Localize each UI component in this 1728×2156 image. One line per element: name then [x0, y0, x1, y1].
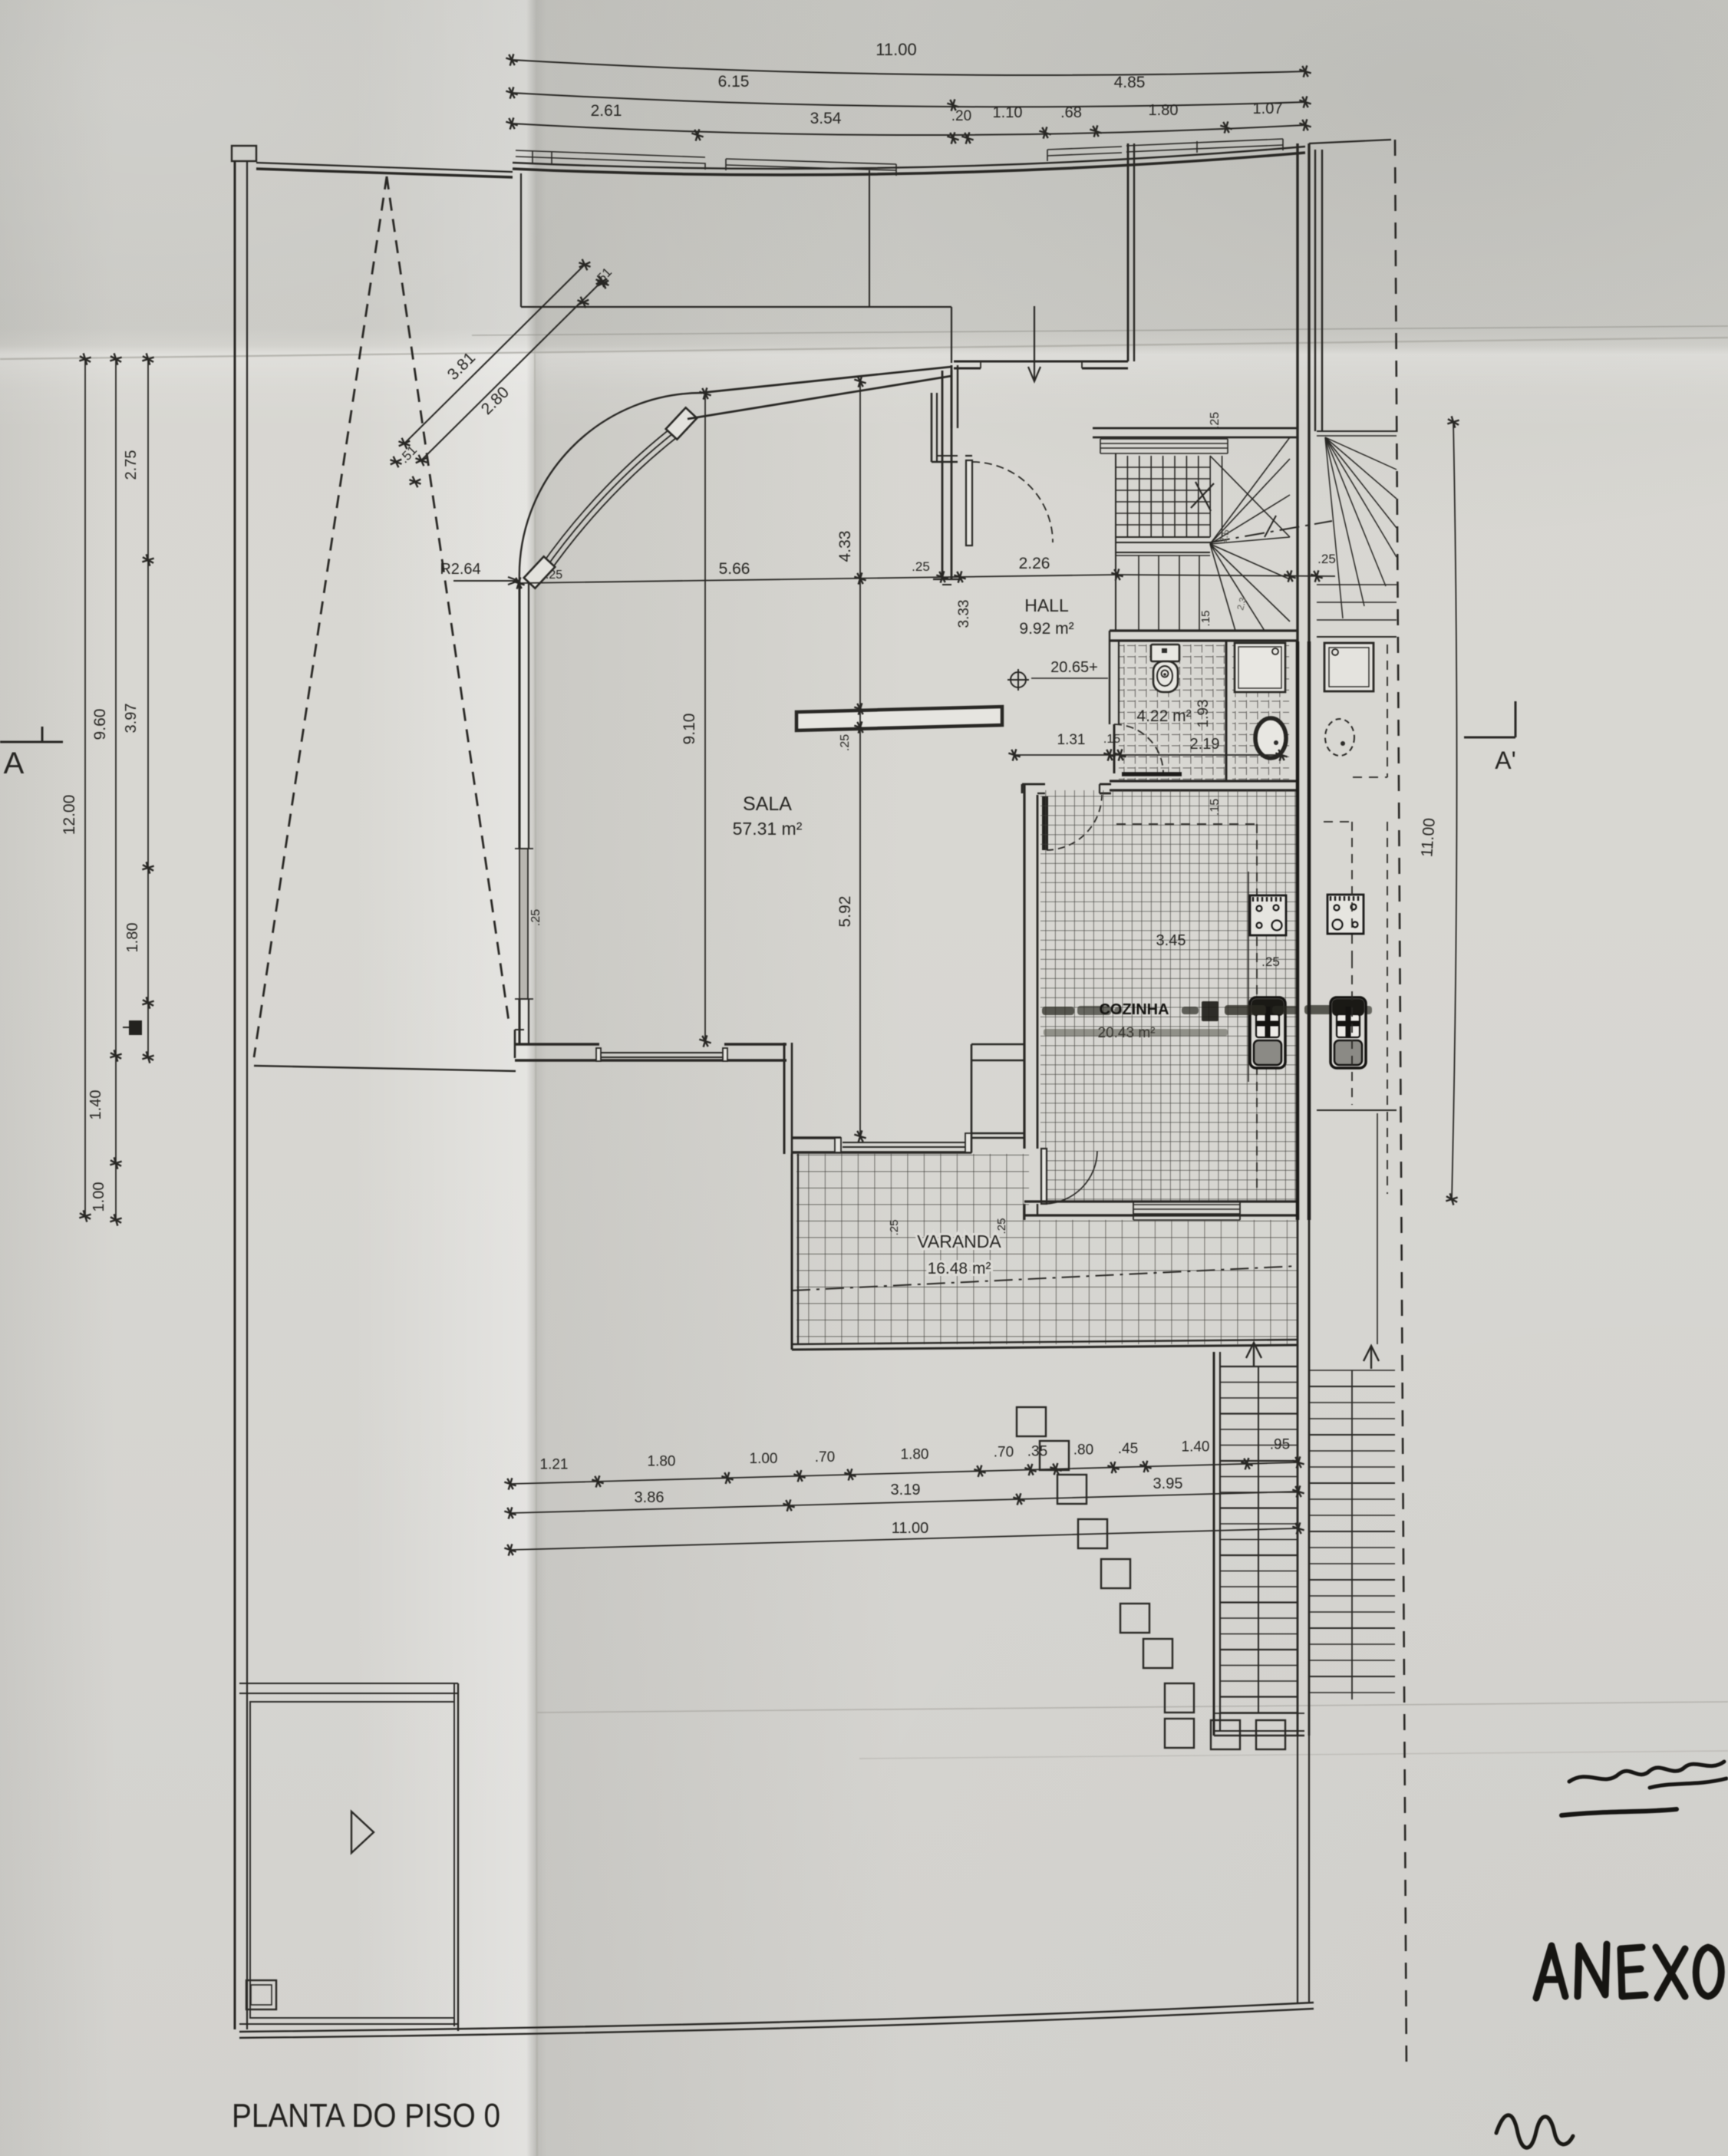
svg-text:.25: .25: [1209, 412, 1222, 429]
svg-text:1.31: 1.31: [1057, 732, 1086, 748]
svg-text:2.75: 2.75: [123, 450, 140, 480]
svg-text:11.00: 11.00: [1418, 817, 1439, 857]
svg-text:3.19: 3.19: [891, 1482, 921, 1498]
svg-text:3.33: 3.33: [956, 600, 972, 628]
svg-text:.15: .15: [1209, 799, 1222, 816]
svg-text:1.80: 1.80: [901, 1447, 929, 1463]
svg-text:20.43 m²: 20.43 m²: [1098, 1025, 1156, 1041]
svg-text:20.65+: 20.65+: [1050, 659, 1098, 676]
svg-text:4.85: 4.85: [1114, 74, 1146, 91]
svg-text:.25: .25: [1261, 954, 1280, 969]
svg-text:1.93: 1.93: [1195, 700, 1212, 728]
svg-text:.20: .20: [951, 108, 971, 124]
svg-text:.80: .80: [1073, 1442, 1093, 1459]
svg-text:11.00: 11.00: [892, 1520, 929, 1537]
svg-text:.25: .25: [546, 569, 562, 582]
svg-text:.51: .51: [592, 265, 615, 288]
svg-text:1.07: 1.07: [1253, 101, 1283, 117]
svg-text:16.48 m²: 16.48 m²: [928, 1260, 991, 1277]
svg-text:.15: .15: [1103, 733, 1120, 746]
svg-text:.68: .68: [1060, 104, 1082, 121]
svg-text:2.80: 2.80: [478, 384, 513, 418]
svg-text:3.54: 3.54: [810, 110, 842, 127]
svg-text:VARANDA: VARANDA: [917, 1231, 1001, 1251]
svg-text:2.19: 2.19: [1190, 736, 1220, 753]
svg-text:1.21: 1.21: [540, 1456, 569, 1472]
svg-text:HALL: HALL: [1024, 595, 1069, 615]
svg-text:.35: .35: [1027, 1443, 1047, 1459]
svg-text:4.33: 4.33: [836, 531, 854, 562]
svg-text:9.10: 9.10: [681, 714, 698, 745]
svg-text:2.61: 2.61: [591, 102, 622, 120]
svg-text:2.26: 2.26: [1019, 555, 1050, 572]
svg-text:COZINHA: COZINHA: [1099, 1001, 1169, 1018]
svg-text:.25: .25: [839, 734, 852, 751]
svg-text:1.00: 1.00: [750, 1451, 778, 1467]
svg-text:A: A: [4, 747, 25, 780]
svg-text:6.15: 6.15: [718, 73, 750, 91]
svg-text:.25: .25: [888, 1220, 901, 1236]
svg-text:.15: .15: [1199, 611, 1212, 627]
svg-text:A': A': [1495, 747, 1515, 774]
svg-text:PLANTA DO PISO 0: PLANTA DO PISO 0: [232, 2097, 500, 2135]
svg-text:12.00: 12.00: [61, 795, 78, 836]
svg-text:1.10: 1.10: [993, 104, 1023, 121]
svg-text:3.95: 3.95: [1153, 1475, 1183, 1492]
svg-text:1.00: 1.00: [91, 1182, 107, 1212]
svg-text:5.66: 5.66: [719, 560, 750, 578]
svg-text:SALA: SALA: [743, 793, 792, 815]
svg-text:.25: .25: [995, 1218, 1008, 1235]
svg-text:1.80: 1.80: [124, 923, 141, 953]
svg-text:4.22 m²: 4.22 m²: [1136, 707, 1191, 725]
svg-text:R2.64: R2.64: [440, 561, 480, 578]
svg-text:9.60: 9.60: [91, 709, 109, 740]
svg-text:1.80: 1.80: [1149, 102, 1179, 119]
svg-text:.25: .25: [1317, 552, 1336, 566]
svg-text:3.45: 3.45: [1156, 932, 1186, 949]
svg-text:11.00: 11.00: [876, 40, 916, 59]
svg-text:5.92: 5.92: [836, 896, 854, 928]
svg-text:1.40: 1.40: [1182, 1439, 1210, 1455]
svg-text:.70: .70: [994, 1445, 1014, 1461]
svg-text:3.97: 3.97: [123, 704, 140, 734]
svg-text:.25: .25: [912, 559, 930, 574]
svg-text:2.3: 2.3: [1235, 596, 1248, 612]
svg-text:.70: .70: [815, 1449, 835, 1465]
svg-text:1.40: 1.40: [87, 1090, 104, 1120]
svg-text:.25: .25: [529, 909, 542, 926]
svg-text:3.86: 3.86: [635, 1489, 664, 1506]
svg-text:1.80: 1.80: [648, 1454, 676, 1470]
svg-text:.45: .45: [1118, 1441, 1138, 1457]
svg-text:9.92 m²: 9.92 m²: [1019, 620, 1073, 638]
svg-text:57.31 m²: 57.31 m²: [733, 819, 803, 839]
